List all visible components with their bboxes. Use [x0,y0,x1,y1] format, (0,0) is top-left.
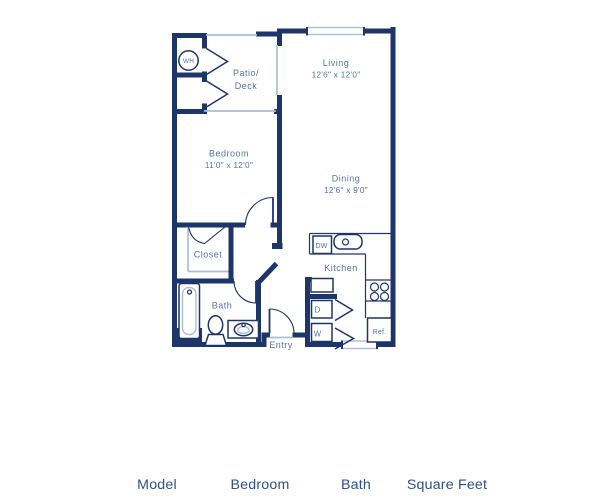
burner [381,283,389,291]
dishwasher-label: DW [315,243,327,250]
column-header-model: Model [137,477,177,493]
living-label: Living [323,58,350,68]
toilet-base [205,335,227,346]
door-swing-arcs [234,198,294,334]
closet-door [189,227,226,244]
column-header-bath: Bath [341,477,371,493]
column-header-square-feet: Square Feet [407,477,487,493]
dining-dims: 12'6" x 9'0" [324,186,368,195]
room-labels: WH Patio/ Deck Living 12'6" x 12'0" Bedr… [183,58,386,350]
floorplan-table-header: Model Bedroom Bath Square Feet [0,477,600,497]
entry-label: Entry [269,340,293,350]
closet-label: Closet [194,250,223,260]
fixtures [179,51,392,346]
laundry-cabinet [311,279,333,293]
burner [371,293,379,301]
column-header-bedroom: Bedroom [231,477,290,493]
living-window [307,28,364,35]
burner [381,293,389,301]
bedroom-label: Bedroom [209,149,249,159]
bath-label: Bath [212,301,233,311]
kitchen-label: Kitchen [324,263,358,273]
washer-label: W [314,330,322,339]
dining-label: Dining [332,174,361,184]
living-dims: 12'6" x 12'0" [312,71,361,80]
wall-cap-hall [272,243,283,249]
patio-label-line2: Deck [235,81,258,91]
dryer-label: D [315,306,321,315]
patio-label-line1: Patio/ [233,68,259,78]
stove-burners [371,283,389,301]
bedroom-dims: 11'0" x 12'0" [205,161,253,170]
toilet-bowl [208,316,222,334]
burner [371,283,379,291]
floor-plan: WH Patio/ Deck Living 12'6" x 12'0" Bedr… [0,0,600,470]
water-heater-label: WH [183,58,194,65]
refrigerator-label: Ref. [373,329,387,336]
